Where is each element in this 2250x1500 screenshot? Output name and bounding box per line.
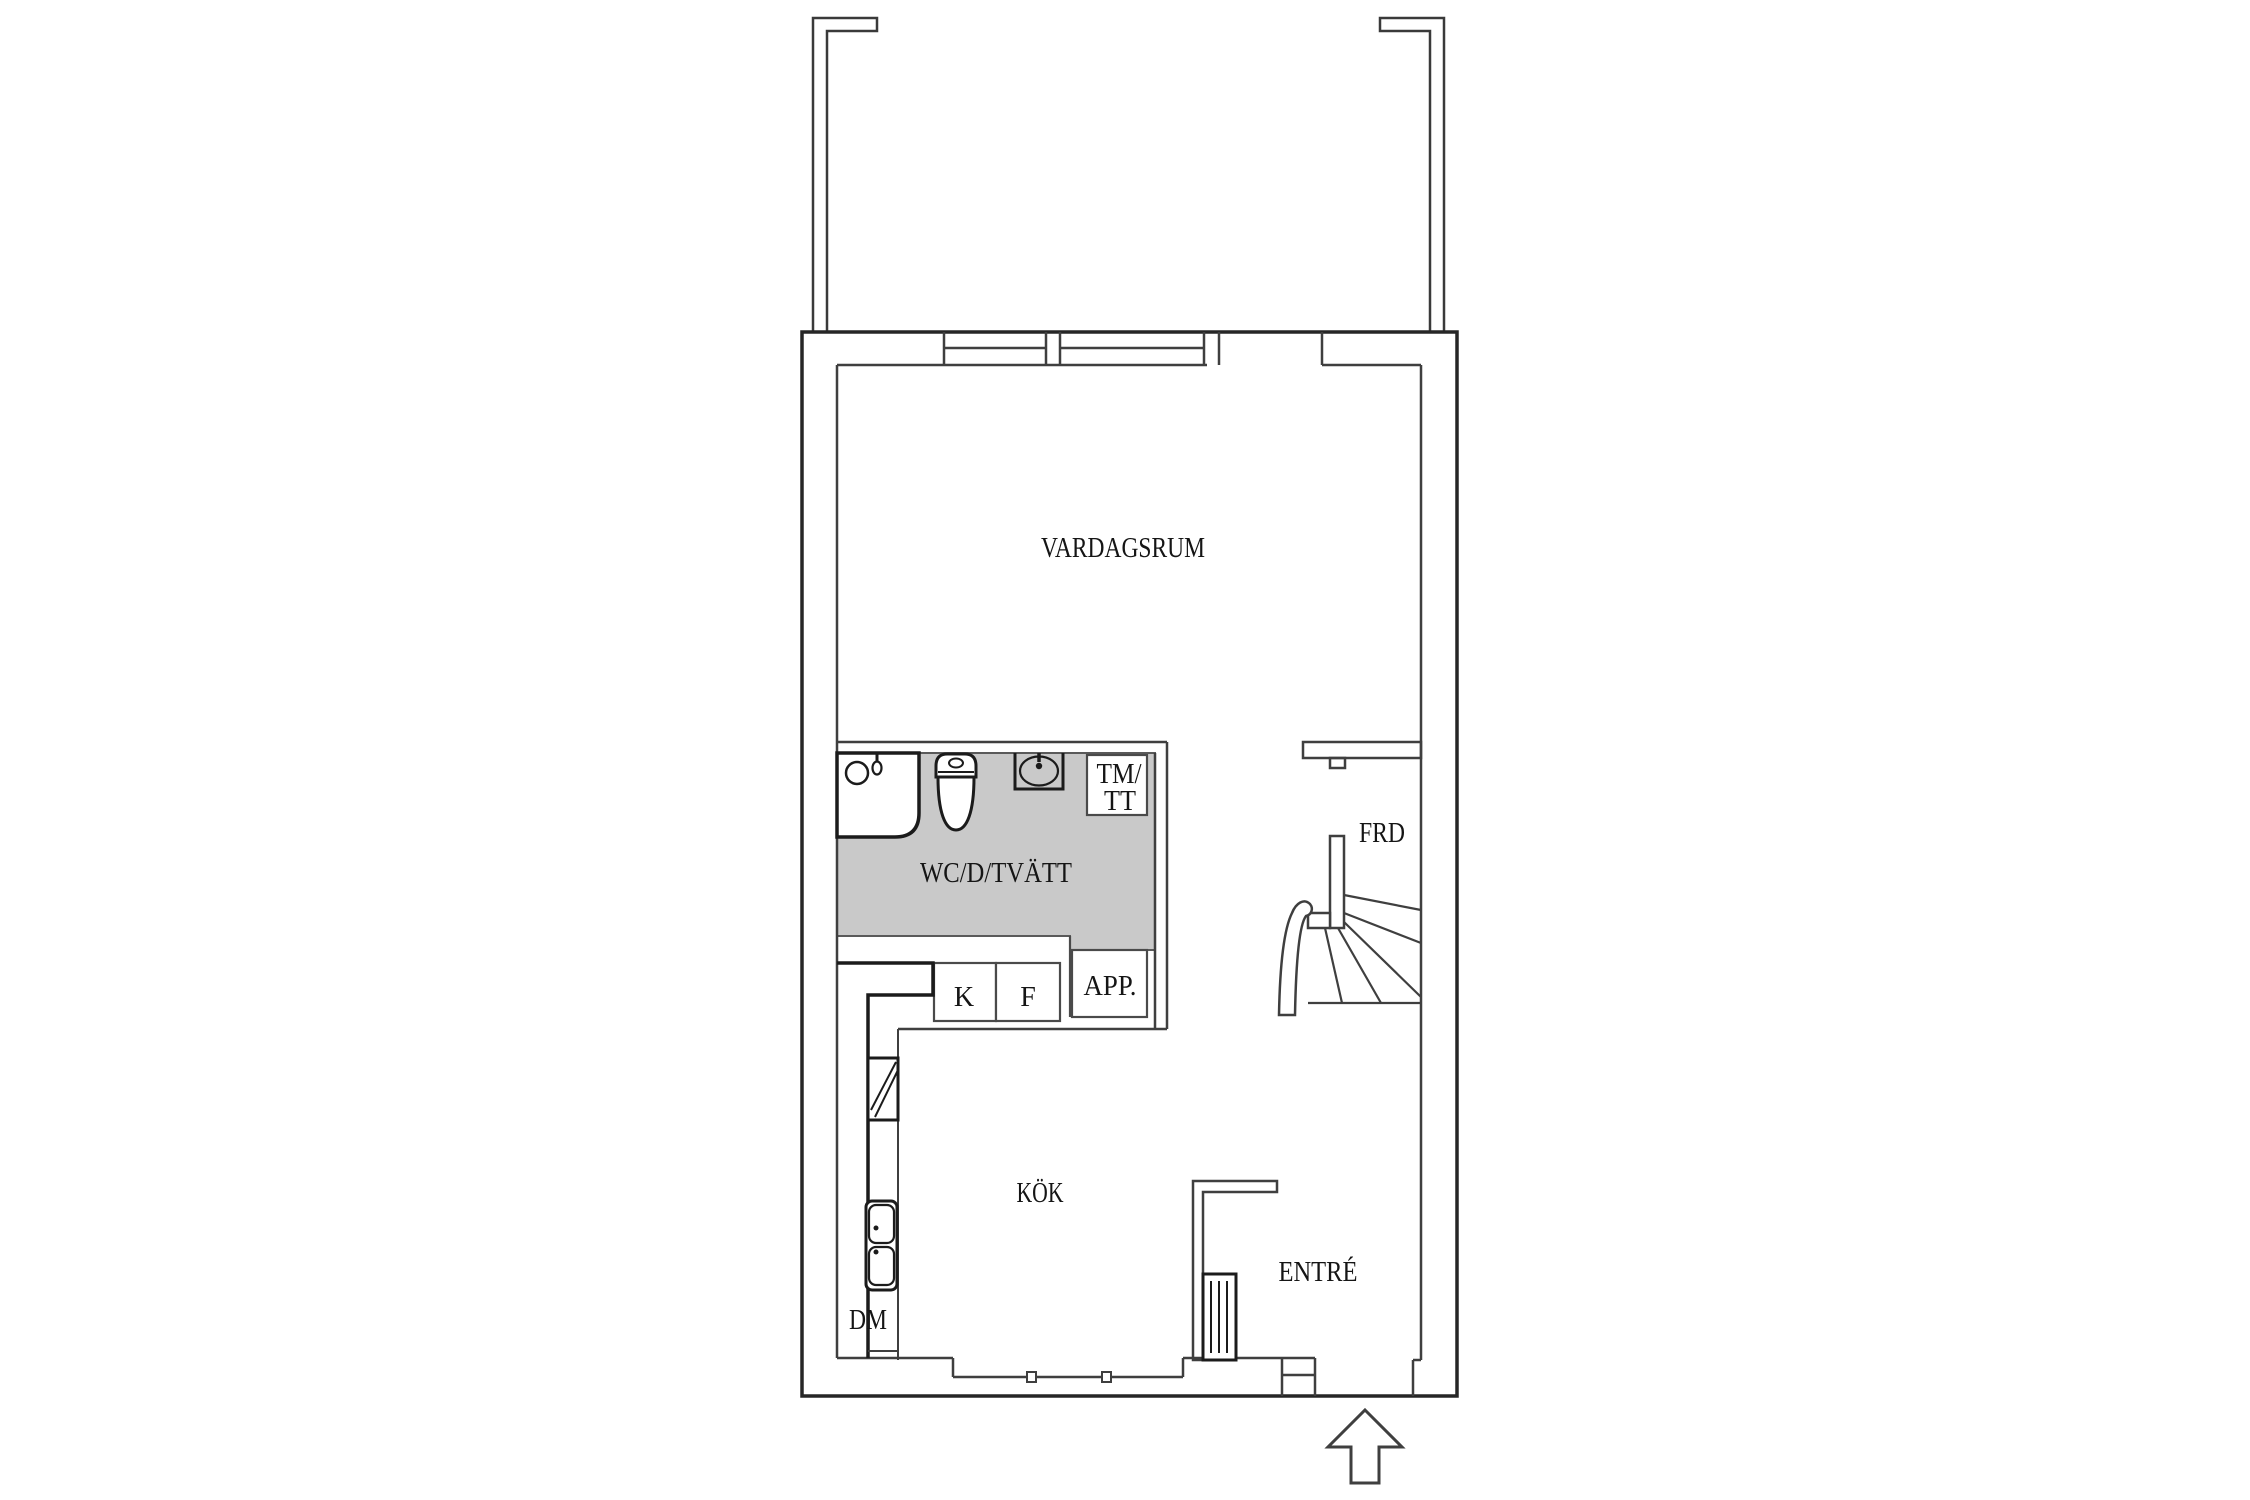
stair-newel-wall xyxy=(1330,836,1344,928)
entrance-direction-arrow-icon xyxy=(1328,1410,1402,1483)
winder-stairs xyxy=(1279,836,1421,1015)
room-label-entrance: ENTRÉ xyxy=(1279,1257,1358,1288)
label-dryer: TT xyxy=(1104,785,1136,817)
floor-plan-page: VARDAGSRUM WC/D/TVÄTT FRD KÖK ENTRÉ TM/ … xyxy=(0,0,2250,1500)
room-label-wet-room: WC/D/TVÄTT xyxy=(920,857,1072,889)
stair-newel-foot xyxy=(1308,913,1330,928)
balcony-wall-left xyxy=(813,18,877,332)
label-freezer: F xyxy=(1020,982,1036,1013)
floor-plan-drawing: VARDAGSRUM WC/D/TVÄTT FRD KÖK ENTRÉ TM/ … xyxy=(0,0,2250,1500)
kitchen-counter xyxy=(837,963,933,1360)
stair-treads xyxy=(1308,895,1421,1003)
room-label-kitchen: KÖK xyxy=(1017,1178,1064,1209)
entrance-radiator-icon xyxy=(1203,1274,1236,1360)
room-label-storage: FRD xyxy=(1359,818,1405,849)
label-fridge: K xyxy=(954,982,974,1013)
room-label-living-room: VARDAGSRUM xyxy=(1041,532,1205,564)
balcony-wall-right xyxy=(1380,18,1444,332)
toilet-tank-icon xyxy=(936,754,976,777)
balcony xyxy=(813,18,1444,332)
kitchen-sink-icon xyxy=(866,1201,897,1290)
counter-edge xyxy=(837,963,933,1358)
label-dishwasher: DM xyxy=(849,1305,887,1336)
label-appliance-cabinet: APP. xyxy=(1084,971,1137,1002)
